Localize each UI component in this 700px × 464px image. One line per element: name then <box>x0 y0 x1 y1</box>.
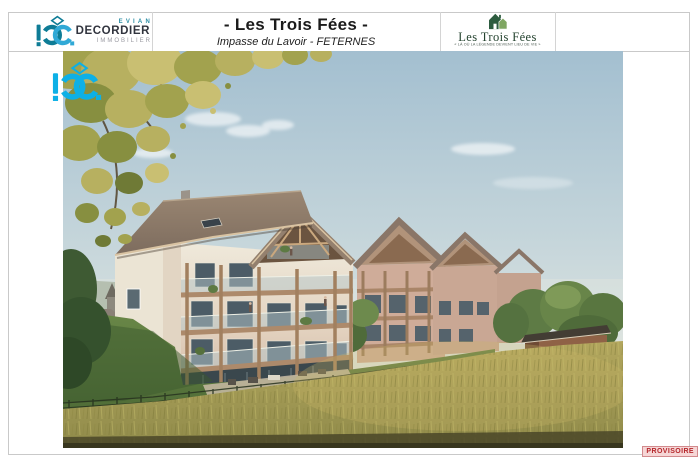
brand-name: DECORDIER <box>76 25 150 38</box>
flyer-page: EVIAN DECORDIER IMMOBILIER - Les Trois F… <box>0 0 700 464</box>
header-divider <box>555 12 556 51</box>
house-icon <box>486 12 510 30</box>
program-logo: Les Trois Fées « LÀ OÙ LA LÉGENDE DEVIEN… <box>440 12 555 51</box>
program-tagline: « LÀ OÙ LA LÉGENDE DEVIENT LIEU DE VIE » <box>454 43 540 47</box>
program-title-block: - Les Trois Fées - Impasse du Lavoir - F… <box>152 15 440 48</box>
page-title: - Les Trois Fées - <box>152 15 440 35</box>
agency-logo: EVIAN DECORDIER IMMOBILIER <box>34 13 150 49</box>
rendering-scene <box>63 51 623 448</box>
brand-sector: IMMOBILIER <box>97 38 152 44</box>
page-subtitle: Impasse du Lavoir - FETERNES <box>152 36 440 48</box>
dc-monogram-icon <box>34 15 76 47</box>
dc-watermark-icon <box>49 61 104 102</box>
architectural-rendering <box>63 51 623 448</box>
provisional-stamp: PROVISOIRE <box>642 446 698 457</box>
program-name: Les Trois Fées <box>458 31 537 43</box>
